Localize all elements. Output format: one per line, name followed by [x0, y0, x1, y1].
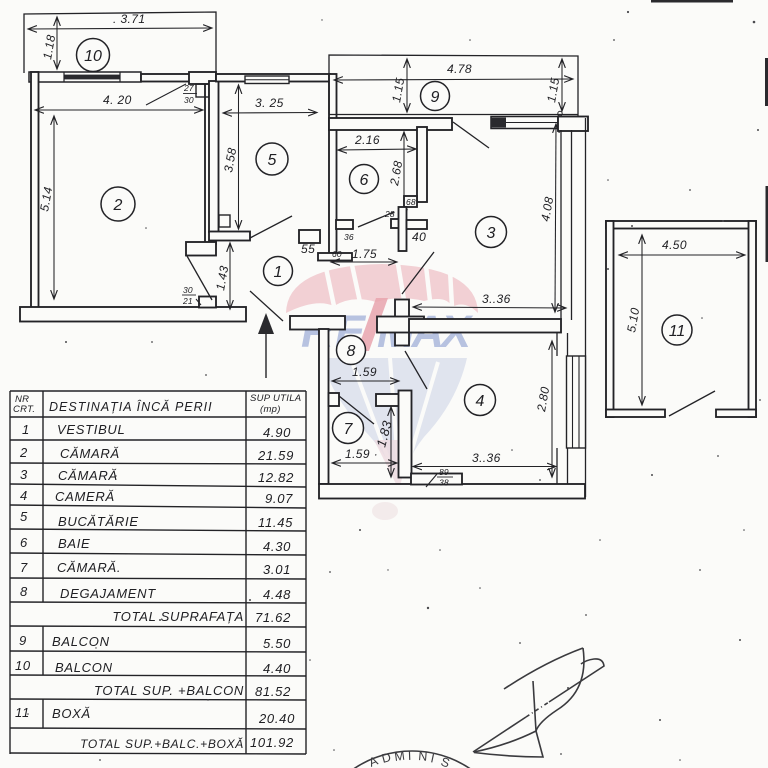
svg-text:1: 1	[22, 422, 30, 437]
svg-text:36: 36	[344, 232, 354, 242]
svg-text:4.50: 4.50	[662, 238, 687, 252]
svg-text:89: 89	[439, 467, 449, 477]
svg-text:20.40: 20.40	[258, 711, 295, 726]
svg-text:7: 7	[344, 421, 354, 438]
svg-text:30: 30	[184, 95, 194, 105]
svg-text:9.07: 9.07	[265, 491, 293, 506]
svg-text:4.78: 4.78	[447, 62, 472, 76]
svg-text:I: I	[408, 749, 412, 763]
svg-text:1.75: 1.75	[352, 247, 377, 261]
svg-text:6: 6	[360, 172, 369, 189]
svg-text:2: 2	[113, 197, 123, 214]
svg-text:TOTAL SUP.+BALC.+BOXĂ: TOTAL SUP.+BALC.+BOXĂ	[80, 736, 244, 751]
svg-text:11.45: 11.45	[258, 515, 293, 530]
svg-text:4.40: 4.40	[263, 661, 291, 676]
svg-text:N: N	[418, 749, 428, 764]
svg-text:4: 4	[476, 393, 485, 410]
svg-text:8: 8	[347, 343, 356, 360]
svg-text:60: 60	[332, 249, 342, 259]
svg-text:8: 8	[20, 584, 28, 599]
svg-text:1.59 ·: 1.59 ·	[345, 447, 378, 461]
svg-text:4.48: 4.48	[263, 587, 291, 602]
svg-text:(mp): (mp)	[260, 404, 281, 415]
svg-text:21: 21	[182, 296, 193, 306]
svg-text:SUP UTILA: SUP UTILA	[250, 393, 301, 404]
svg-text:3..36: 3..36	[472, 451, 501, 465]
svg-text:4.90: 4.90	[263, 425, 291, 440]
svg-text:BUCĂTĂRIE: BUCĂTĂRIE	[58, 514, 139, 529]
svg-text:BALCON: BALCON	[55, 660, 113, 675]
svg-text:11: 11	[669, 323, 686, 340]
svg-text:2: 2	[19, 445, 28, 460]
svg-text:101.92: 101.92	[250, 735, 294, 750]
svg-text:30: 30	[183, 285, 193, 295]
svg-text:9: 9	[431, 89, 440, 106]
svg-text:1: 1	[274, 264, 283, 281]
svg-text:71.62: 71.62	[255, 610, 291, 625]
svg-text:5.50: 5.50	[263, 636, 291, 651]
svg-text:68: 68	[406, 197, 416, 207]
svg-text:DESTINAȚIA ÎNCĂ PERII: DESTINAȚIA ÎNCĂ PERII	[49, 399, 213, 414]
svg-text:7: 7	[20, 560, 28, 575]
svg-text:1.59: 1.59	[352, 365, 377, 379]
svg-text:5: 5	[268, 152, 277, 169]
svg-text:9: 9	[19, 633, 27, 648]
svg-text:CAMERĂ: CAMERĂ	[55, 489, 115, 504]
svg-text:2.16: 2.16	[354, 133, 380, 147]
svg-text:TOTAL SUPRAFAȚA: TOTAL SUPRAFAȚA	[112, 609, 244, 624]
svg-text:3.01: 3.01	[263, 562, 291, 577]
svg-text:5: 5	[20, 509, 28, 524]
svg-text:CĂMARĂ.: CĂMARĂ.	[57, 560, 121, 575]
svg-text:55: 55	[301, 242, 315, 256]
svg-text:10: 10	[15, 658, 31, 673]
svg-text:3: 3	[20, 467, 28, 482]
svg-text:3..36: 3..36	[482, 292, 511, 306]
svg-text:40: 40	[412, 230, 426, 244]
svg-text:21.59: 21.59	[257, 448, 294, 463]
svg-text:4.30: 4.30	[263, 539, 291, 554]
svg-text:BALCON: BALCON	[52, 634, 110, 649]
svg-text:CĂMARĂ: CĂMARĂ	[58, 468, 118, 483]
svg-text:M: M	[393, 749, 405, 764]
svg-text:11: 11	[15, 705, 30, 720]
svg-text:CĂMARĂ: CĂMARĂ	[60, 446, 120, 461]
svg-text:12.82: 12.82	[258, 470, 294, 485]
svg-text:VESTIBUL: VESTIBUL	[57, 422, 125, 437]
svg-text:10: 10	[84, 48, 102, 65]
svg-text:3. 25: 3. 25	[255, 96, 284, 110]
svg-text:28: 28	[384, 209, 395, 219]
svg-text:BAIE: BAIE	[58, 536, 90, 551]
svg-text:BOXĂ: BOXĂ	[52, 706, 91, 721]
svg-text:6: 6	[20, 535, 28, 550]
svg-text:CRT.: CRT.	[13, 404, 35, 415]
svg-text:. 3.71: . 3.71	[113, 12, 145, 26]
svg-text:3: 3	[487, 225, 496, 242]
svg-text:4: 4	[20, 488, 28, 503]
svg-text:TOTAL SUP. +BALCON: TOTAL SUP. +BALCON	[94, 683, 244, 698]
svg-text:DEGAJAMENT: DEGAJAMENT	[60, 586, 156, 601]
svg-text:4. 20: 4. 20	[103, 93, 132, 107]
svg-text:38: 38	[439, 478, 449, 488]
svg-text:81.52: 81.52	[255, 684, 291, 699]
